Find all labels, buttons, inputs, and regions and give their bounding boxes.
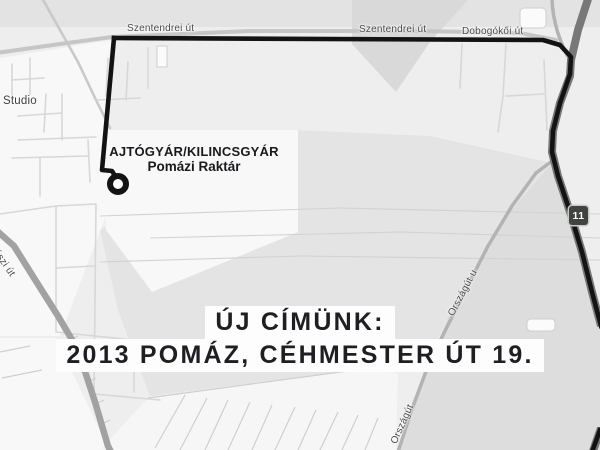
route-11-shield: 11 bbox=[569, 206, 588, 225]
destination-marker-icon bbox=[110, 176, 126, 192]
destination-label: AJTÓGYÁR/KILINCSGYÁR Pomázi Raktár bbox=[104, 144, 284, 175]
announcement-line2: 2013 POMÁZ, CÉHMESTER ÚT 19. bbox=[56, 339, 543, 372]
place-label-studio: Studio bbox=[3, 95, 37, 107]
announcement-line1: ÚJ CÍMÜNK: bbox=[205, 306, 394, 339]
map-graphics bbox=[0, 0, 600, 450]
street-label-szentendrei-ut-2: Szentendrei út bbox=[359, 24, 426, 35]
destination-name: AJTÓGYÁR/KILINCSGYÁR bbox=[104, 144, 284, 159]
street-label-dobogokoi-ut: Dobogókői út bbox=[462, 26, 523, 37]
map-canvas: Szentendrei út Szentendrei út Dobogókői … bbox=[0, 0, 600, 450]
announcement-banner: ÚJ CÍMÜNK: 2013 POMÁZ, CÉHMESTER ÚT 19. bbox=[0, 306, 600, 372]
destination-subtitle: Pomázi Raktár bbox=[104, 159, 284, 175]
street-label-szentendrei-ut-1: Szentendrei út bbox=[127, 23, 194, 34]
